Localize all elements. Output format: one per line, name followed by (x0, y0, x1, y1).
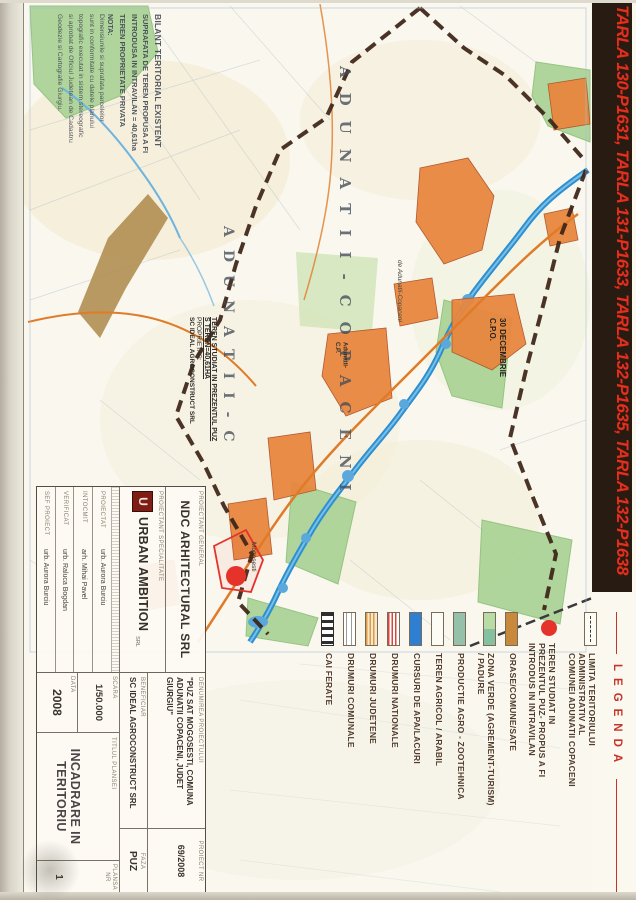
village-label-30-decembrie-sub: C.P.O. (487, 318, 497, 377)
beneficiary-name: SC IDEAL AGROCONSTRUCT SRL (128, 677, 137, 824)
nota-line: si aprobat de Oficiul Judetean de Cadast… (64, 14, 75, 208)
legend-item-label: ZONA VERDE (AGREMENT-TURISM) / PADURE (476, 653, 496, 806)
address-microtext (111, 487, 119, 672)
legend-item-studied-land: TEREN STUDIAT IN PREZENTUL PUZ- PROPUS A… (527, 612, 558, 898)
signer-row-proiectat: PROIECTAT urb. Aurora Burciu (92, 487, 111, 672)
territorial-balance-note: BILANT TERITORIAL EXISTENT SUPRAFATA DE … (31, 14, 163, 208)
map-study-area-dot (226, 566, 246, 586)
phase-cell: FAZA PUZ (120, 829, 147, 893)
village-label-adunatii-sub: C.P. (333, 342, 340, 368)
sheet-number-label: PLANSA NR (104, 863, 117, 891)
signer-name: urb. Raluca Bogdan (61, 549, 68, 611)
legend-title: LEGENDA (611, 664, 623, 769)
legend-item-administrative-boundary: LIMITA TERITORIULUI ADMINISTRATIV AL COM… (566, 612, 597, 898)
legend-title-rule-right (617, 779, 618, 898)
signer-name: arh. Mihai Pavel (80, 549, 87, 599)
village-label-mogosesti: Mogosesti (250, 542, 257, 572)
project-number-label: PROIECT NR (196, 832, 203, 890)
studied-land-annotation: TEREN STUDIAT IN PREZENTUL PUZ S TEREN=4… (165, 317, 217, 459)
scale-cell: SCARA 1/50.000 (78, 673, 120, 732)
studied-land-line3: PROPRIETAR: (195, 317, 202, 459)
legend-item-green-zone: ZONA VERDE (AGREMENT-TURISM) / PADURE (476, 612, 496, 898)
national-roads-icon (388, 612, 401, 646)
county-roads-icon (366, 612, 379, 646)
project-number-cell: PROIECT NR 69/2008 (148, 829, 205, 893)
legend-item-label: TEREN STUDIAT IN PREZENTUL PUZ- PROPUS A… (527, 643, 558, 777)
legend-item-label: TEREN AGRICOL / ARABIL (434, 653, 444, 766)
scale-value: 1/50.000 (93, 676, 104, 729)
legend: LEGENDA LIMITA TERITORIULUI ADMINISTRATI… (282, 612, 630, 898)
project-name: "PUZ SAT MOGOSESTI, COMUNA ADUNATII COPA… (163, 677, 194, 824)
signer-row-intocmit: INTOCMIT arh. Mihai Pavel (74, 487, 93, 672)
built-up-area-icon (505, 612, 518, 646)
date-value: 2008 (50, 676, 64, 729)
beneficiary-row: BENEFICIAR SC IDEAL AGROCONSTRUCT SRL FA… (119, 673, 147, 893)
signer-name: urb. Aurora Burciu (42, 549, 49, 605)
proiectant-general-cell: PROIECTANT GENERAL NDC ARHITECTURAL SRL (165, 487, 205, 672)
map-spread-name-adunatii-copaceni: ADUNATII-COPACENI (336, 66, 354, 506)
green-zone-icon (483, 612, 496, 646)
proiectant-specialitate-label: PROIECTANT SPECIALITATE (156, 491, 163, 668)
bilant-title: BILANT TERITORIAL EXISTENT (153, 14, 163, 208)
legend-item-label: PRODUCTIE AGRO - ZOOTEHNICA (456, 653, 466, 800)
signer-label: SEF PROIECT (43, 491, 50, 549)
legend-item-label: LIMITA TERITORIULUI ADMINISTRATIV AL COM… (566, 653, 597, 787)
studied-land-line4: SC IDEAL AGROCONSTRUCT SRL (188, 317, 195, 459)
nota-line: Dimensiunile si suprafata parcelelor (96, 14, 107, 208)
scanned-map-sheet: ADUNATII-COPACENI ADUNATII-C 30 DECEMBRI… (0, 0, 636, 900)
sheet-title-label: TITLUL PLANSEI (109, 737, 116, 856)
bilant-line: SUPRAFATA DE TEREN PROPUSA A FI (140, 14, 151, 208)
scan-smudge-bottom-left (20, 840, 80, 900)
title-block: PROIECTANT GENERAL NDC ARHITECTURAL SRL … (36, 486, 206, 894)
nota-title: NOTA: (106, 14, 113, 208)
proiectant-specialitate-suffix: SRL (134, 636, 140, 647)
legend-title-row: LEGENDA (606, 612, 628, 898)
legend-item-built-up: ORASE/COMUNE/SATE (505, 612, 518, 898)
legend-title-rule-left (617, 612, 618, 654)
legend-item-label: DRUMURI COMUNALE (346, 653, 356, 748)
legend-item-agro-zootechnical: PRODUCTIE AGRO - ZOOTEHNICA (454, 612, 467, 898)
village-label-adunatii: Adunatii- C.P. (333, 342, 347, 368)
project-name-cell: DENUMIREA PROIECTULUI "PUZ SAT MOGOSESTI… (148, 673, 205, 829)
signer-label: INTOCMIT (80, 491, 87, 549)
village-label-30-decembrie: 30 DECEMBRIE C.P.O. (487, 318, 507, 377)
scale-label: SCARA (110, 676, 117, 729)
studied-land-line2: S TEREN=40,61HA (203, 317, 210, 459)
agricultural-land-icon (432, 612, 445, 646)
legend-item-county-roads: DRUMURI JUDETENE (366, 612, 379, 898)
legend-item-label: CAI FERATE (324, 653, 334, 705)
date-label: DATA (69, 676, 76, 729)
map-spread-name-adunatii: ADUNATII-C (220, 226, 236, 455)
beneficiary-cell: BENEFICIAR SC IDEAL AGROCONSTRUCT SRL (120, 673, 147, 829)
bilant-line: INTRODUSA IN INTRAVILAN = 40,61ha (129, 14, 140, 208)
nota-line: sunt in conformitate cu datele planului (85, 14, 96, 208)
urban-ambition-row: U URBAN AMBITION SRL (132, 491, 153, 668)
title-block-left: PROIECTANT GENERAL NDC ARHITECTURAL SRL … (37, 487, 205, 673)
signer-row-sef-proiect: SEF PROIECT urb. Aurora Burciu (37, 487, 55, 672)
scan-edge-top (0, 0, 636, 3)
phase-value: PUZ (127, 832, 138, 890)
agro-zootechnical-icon (454, 612, 467, 646)
signer-name: urb. Aurora Burciu (99, 549, 106, 605)
urban-ambition-logo: U (132, 491, 153, 512)
studied-land-line1: TEREN STUDIAT IN PREZENTUL PUZ (210, 317, 217, 459)
bilant-line: TEREN PROPRIETATE PRIVATA (117, 14, 128, 208)
project-name-label: DENUMIREA PROIECTULUI (196, 677, 203, 824)
scale-date-cell: SCARA 1/50.000 DATA 2008 (37, 673, 119, 733)
project-number: 69/2008 (176, 832, 186, 890)
legend-item-water: CURSURI DE APA/LACURI (410, 612, 423, 898)
legend-item-label: ORASE/COMUNE/SATE (508, 653, 518, 751)
proiectant-specialitate-cell: PROIECTANT SPECIALITATE U URBAN AMBITION… (119, 487, 165, 672)
signer-label: PROIECTAT (99, 491, 106, 549)
railways-icon (322, 612, 335, 646)
legend-item-national-roads: DRUMURI NATIONALE (388, 612, 401, 898)
phase-label: FAZA (138, 832, 145, 890)
signer-label: VERIFICAT (61, 491, 68, 549)
beneficiary-label: BENEFICIAR (138, 677, 145, 824)
sheet-title: INCADRARE IN TERITORIU (54, 737, 82, 856)
studied-land-circle-icon (541, 620, 557, 636)
legend-item-communal-roads: DRUMURI COMUNALE (344, 612, 357, 898)
nota-line: Geodezie si Cartografie Giurgiu. (54, 14, 65, 208)
legend-item-label: DRUMURI JUDETENE (368, 653, 378, 744)
administrative-boundary-icon (584, 612, 597, 646)
signer-row-verificat: VERIFICAT urb. Raluca Bogdan (55, 487, 74, 672)
tarla-banner: TARLA 130-P1631, TARLA 131-P1633, TARLA … (592, 0, 632, 592)
scan-edge-left (0, 0, 24, 900)
communal-roads-icon (344, 612, 357, 646)
legend-item-agricultural: TEREN AGRICOL / ARABIL (432, 612, 445, 898)
legend-item-label: DRUMURI NATIONALE (390, 653, 400, 748)
village-label-adunatii-name: Adunatii- (340, 342, 347, 368)
road-label-de-adunatii-copaceni: de Adunatii-Copaceni (396, 260, 403, 322)
legend-item-label: CURSURI DE APA/LACURI (412, 653, 422, 764)
proiectant-specialitate-name: URBAN AMBITION (136, 517, 150, 631)
proiectant-general-label: PROIECTANT GENERAL (196, 491, 203, 668)
nota-line: topografic executat in sistem stereograf… (75, 14, 86, 208)
proiectant-general-name: NDC ARHITECTURAL SRL (178, 491, 192, 668)
legend-item-railways: CAI FERATE (322, 612, 335, 898)
water-courses-icon (410, 612, 423, 646)
scan-edge-bottom (0, 892, 636, 900)
village-label-30-decembrie-name: 30 DECEMBRIE (497, 318, 507, 377)
project-name-row: DENUMIREA PROIECTULUI "PUZ SAT MOGOSESTI… (147, 673, 205, 893)
date-cell: DATA 2008 (37, 673, 78, 732)
